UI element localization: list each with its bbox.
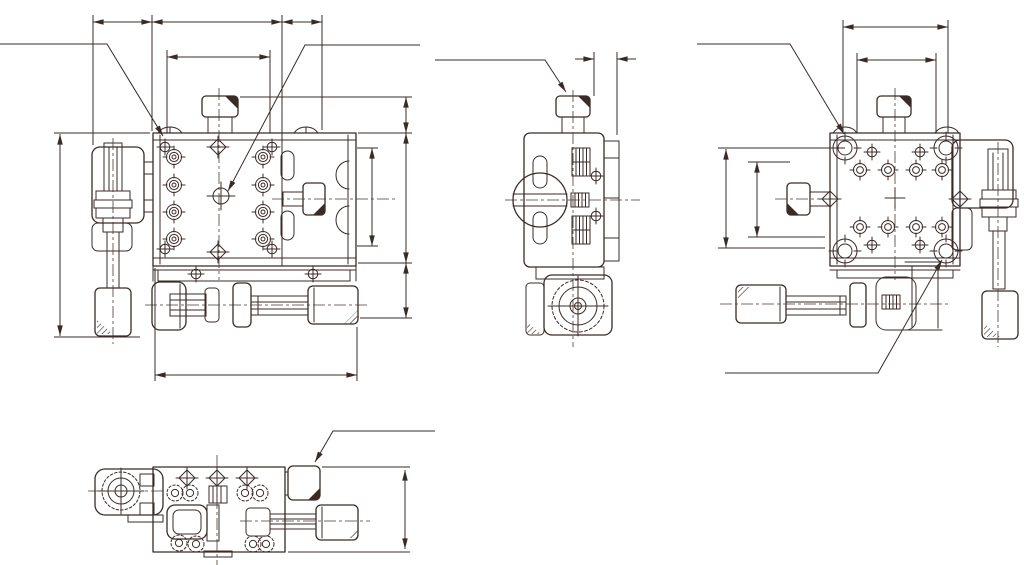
plan-top-knob	[285, 466, 320, 500]
side-micrometer-thimble	[548, 276, 608, 336]
rear-view	[697, 20, 1018, 373]
front-side-knob	[272, 183, 395, 215]
rear-top-knob	[877, 96, 911, 133]
front-base-plate	[153, 266, 356, 282]
top-view	[88, 431, 435, 565]
plan-dimension-line	[288, 467, 410, 552]
rear-clamp-handle	[952, 140, 1018, 347]
front-micrometer	[145, 282, 370, 330]
rear-micrometer	[720, 262, 950, 330]
front-clamp-handle	[92, 138, 153, 344]
front-stage-body	[153, 88, 356, 280]
side-leader-line	[435, 60, 566, 92]
rear-dimension-lines	[718, 20, 948, 248]
technical-drawing-canvas	[0, 0, 1024, 565]
front-view	[0, 15, 420, 381]
front-dimension-lines	[54, 15, 412, 381]
plan-leader-line	[315, 431, 435, 462]
front-top-knob	[202, 96, 238, 133]
rear-leader-lines	[697, 44, 942, 373]
side-lower-bracket	[526, 267, 612, 335]
side-stage-body	[505, 90, 640, 347]
multiview-stage-drawing	[0, 0, 1024, 565]
plan-stage-body	[153, 455, 285, 565]
plan-micrometer	[240, 505, 370, 540]
side-view	[435, 52, 640, 347]
